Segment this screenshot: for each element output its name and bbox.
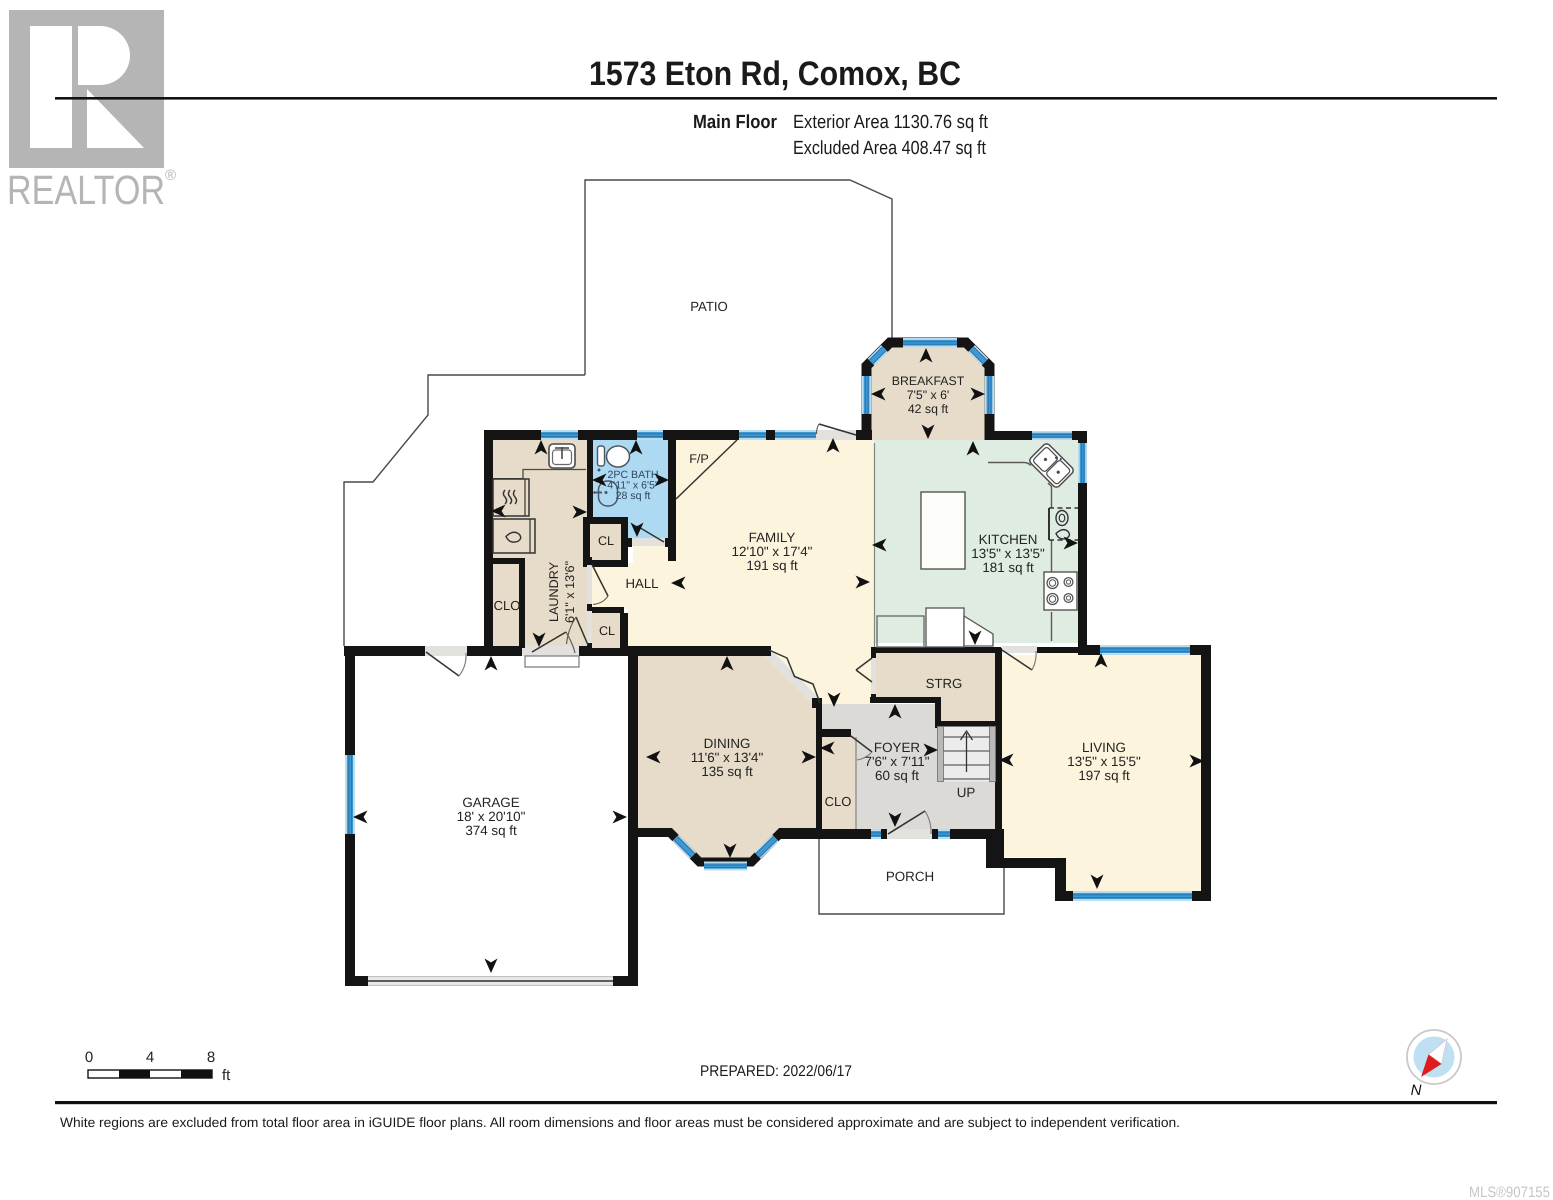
svg-text:12'10" x 17'4": 12'10" x 17'4" <box>732 544 813 559</box>
svg-text:MLS®907155: MLS®907155 <box>1469 1184 1550 1200</box>
svg-text:8: 8 <box>207 1049 215 1066</box>
svg-text:PATIO: PATIO <box>690 299 728 314</box>
svg-text:4: 4 <box>146 1049 154 1066</box>
svg-text:HALL: HALL <box>626 576 659 591</box>
svg-text:CL: CL <box>599 624 615 638</box>
svg-text:REALTOR: REALTOR <box>7 167 165 213</box>
svg-text:KITCHEN: KITCHEN <box>979 532 1038 547</box>
svg-text:GARAGE: GARAGE <box>462 795 519 810</box>
svg-text:LAUNDRY: LAUNDRY <box>547 561 561 622</box>
svg-text:Excluded Area 408.47 sq ft: Excluded Area 408.47 sq ft <box>793 138 987 159</box>
svg-text:7'6" x 7'11": 7'6" x 7'11" <box>865 754 930 769</box>
svg-text:374 sq ft: 374 sq ft <box>465 823 517 838</box>
svg-text:ft: ft <box>222 1067 231 1084</box>
svg-text:42 sq ft: 42 sq ft <box>908 402 949 416</box>
svg-text:191 sq ft: 191 sq ft <box>746 558 798 573</box>
svg-text:CLO: CLO <box>825 794 852 809</box>
svg-text:BREAKFAST: BREAKFAST <box>892 374 965 388</box>
svg-text:Main Floor: Main Floor <box>693 112 778 133</box>
svg-text:PREPARED: 2022/06/17: PREPARED: 2022/06/17 <box>700 1063 852 1080</box>
svg-text:PORCH: PORCH <box>886 869 934 884</box>
svg-text:CL: CL <box>598 534 614 548</box>
svg-text:Exterior Area 1130.76 sq ft: Exterior Area 1130.76 sq ft <box>793 112 989 133</box>
svg-text:White regions are excluded fro: White regions are excluded from total fl… <box>60 1115 1180 1130</box>
svg-text:13'5" x 13'5": 13'5" x 13'5" <box>971 546 1045 561</box>
svg-text:60 sq ft: 60 sq ft <box>875 768 919 783</box>
svg-text:LIVING: LIVING <box>1082 740 1126 755</box>
svg-text:0: 0 <box>85 1049 93 1066</box>
svg-text:197 sq ft: 197 sq ft <box>1078 768 1130 783</box>
svg-text:F/P: F/P <box>689 452 709 466</box>
svg-text:FOYER: FOYER <box>874 740 920 755</box>
svg-text:7'5" x 6': 7'5" x 6' <box>907 388 950 402</box>
svg-text:®: ® <box>165 167 176 184</box>
svg-text:18' x 20'10": 18' x 20'10" <box>457 809 526 824</box>
svg-text:FAMILY: FAMILY <box>749 530 796 545</box>
svg-text:13'5" x 15'5": 13'5" x 15'5" <box>1067 754 1141 769</box>
svg-text:135 sq ft: 135 sq ft <box>701 764 753 779</box>
svg-text:UP: UP <box>957 785 976 800</box>
svg-text:1573 Eton Rd, Comox, BC: 1573 Eton Rd, Comox, BC <box>589 55 961 93</box>
svg-text:CLO: CLO <box>494 598 521 613</box>
svg-text:28 sq ft: 28 sq ft <box>616 490 651 502</box>
svg-text:181 sq ft: 181 sq ft <box>982 560 1034 575</box>
svg-text:N: N <box>1411 1082 1422 1099</box>
svg-text:6'1" x 13'6": 6'1" x 13'6" <box>563 561 577 623</box>
svg-text:11'6" x 13'4": 11'6" x 13'4" <box>691 750 764 765</box>
svg-text:DINING: DINING <box>704 736 751 751</box>
svg-text:STRG: STRG <box>926 676 963 691</box>
